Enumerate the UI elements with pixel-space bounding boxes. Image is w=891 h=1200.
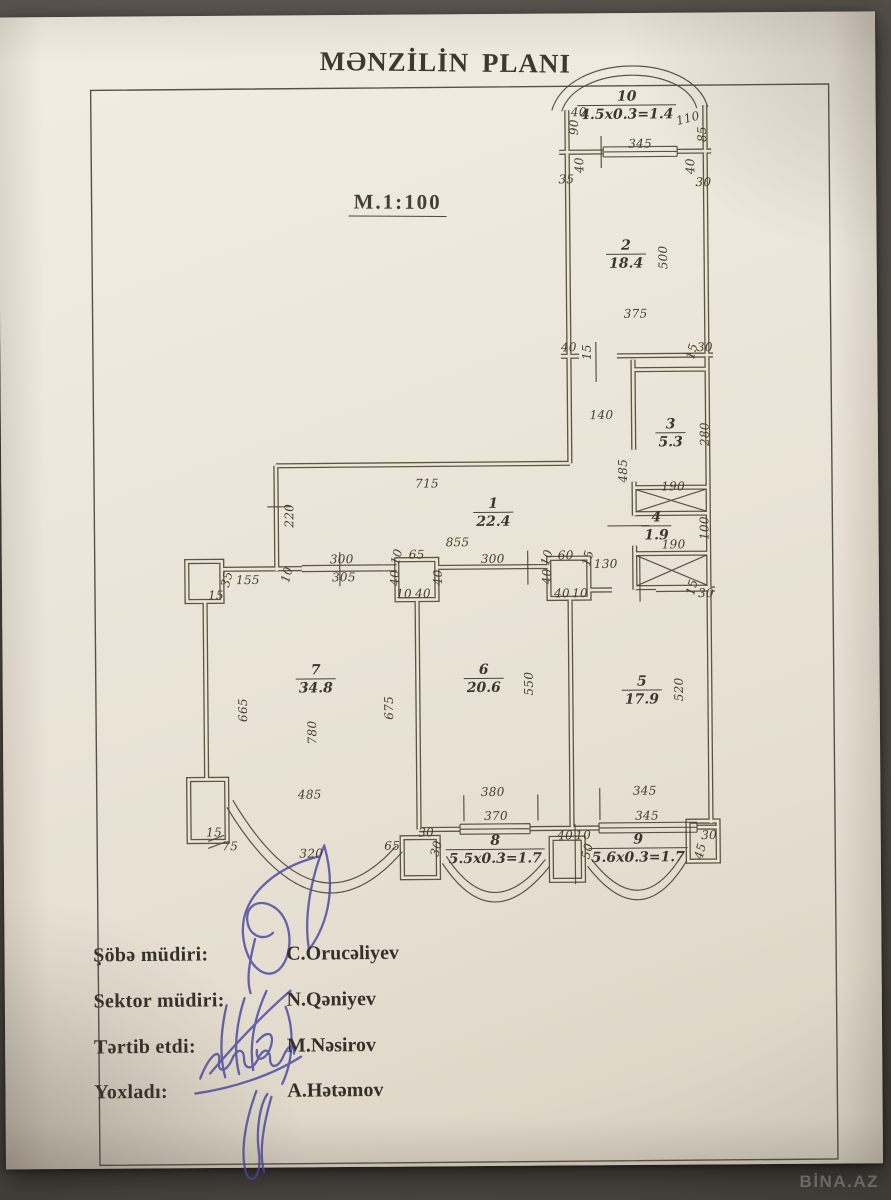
signature-role: Tərtib etdi:	[94, 1035, 287, 1060]
signature-row: Tərtib etdi:M.Nəsirov	[94, 1033, 534, 1060]
signature-block: Şöbə müdiri:C.OrucəliyevSektor müdiri:N.…	[0, 0, 891, 1200]
document-page: MƏNZİLİN PLANI M.1:100	[0, 11, 883, 1169]
signature-name: N.Qəniyev	[286, 988, 376, 1011]
signature-role: Yoxladı:	[94, 1080, 287, 1105]
signature-name: M.Nəsirov	[287, 1034, 376, 1057]
signature-name: C.Orucəliyev	[286, 942, 399, 965]
signature-row: Yoxladı:A.Hətəmov	[94, 1078, 534, 1105]
signature-role: Şöbə müdiri:	[93, 943, 286, 968]
signature-row: Şöbə müdiri:C.Orucəliyev	[93, 941, 533, 968]
signature-row: Sektor müdiri:N.Qəniyev	[93, 987, 533, 1014]
photo-background: MƏNZİLİN PLANI M.1:100	[0, 0, 891, 1200]
signature-name: A.Hətəmov	[287, 1079, 383, 1102]
watermark: BİNA.AZ	[800, 1172, 879, 1192]
signature-role: Sektor müdiri:	[93, 989, 286, 1014]
page-content: MƏNZİLİN PLANI M.1:100	[0, 0, 891, 1200]
